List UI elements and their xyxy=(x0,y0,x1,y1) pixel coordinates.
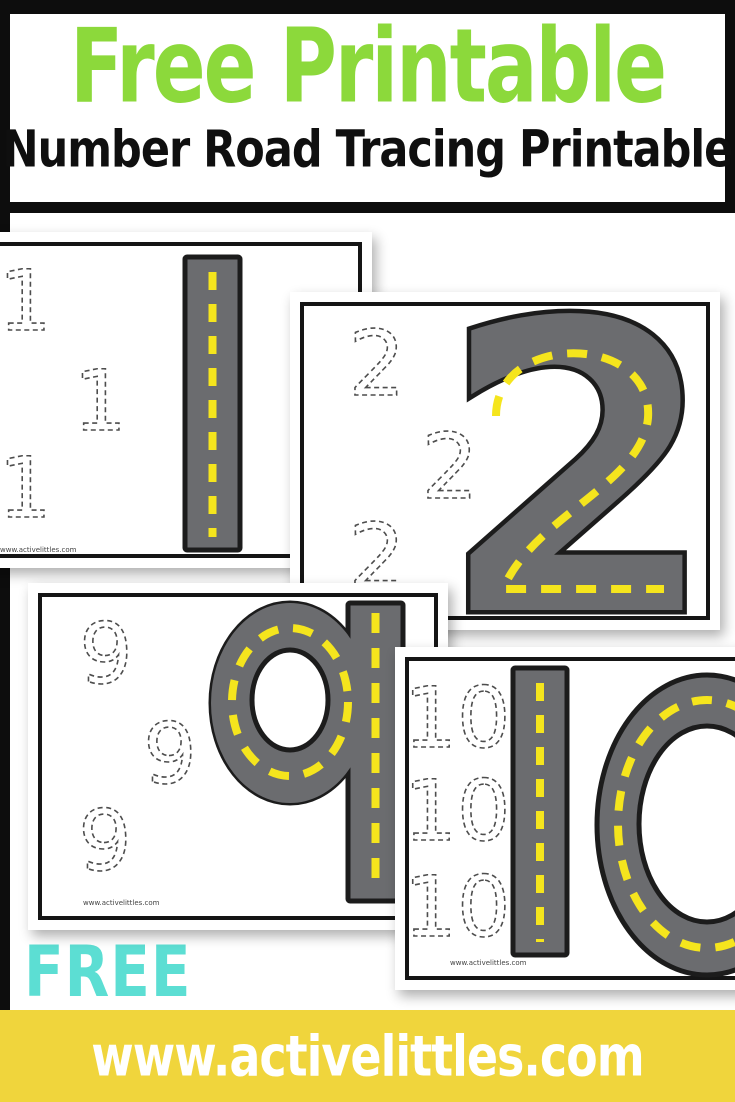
trace-digit: 9 xyxy=(79,605,132,703)
pin-image: Free Printable Number Road Tracing Print… xyxy=(0,0,735,1102)
trace-digit: 1 xyxy=(0,252,52,350)
worksheet-card-number-9: 9 9 9 www.activelittles.com xyxy=(28,583,448,930)
worksheet-card-number-2: 2 2 2 2 xyxy=(290,292,720,630)
trace-digit: 2 xyxy=(348,312,405,417)
watermark-text: www.activelittles.com xyxy=(83,899,160,907)
watermark-text: www.activelittles.com xyxy=(0,546,77,554)
header-divider-bar xyxy=(0,202,735,213)
trace-digit: 10 xyxy=(404,669,511,767)
free-label: FREE xyxy=(24,930,192,1013)
road-shape-10 xyxy=(513,668,735,975)
website-banner: www.activelittles.com xyxy=(0,1010,735,1102)
worksheet-art-9: 9 9 9 www.activelittles.com xyxy=(28,583,448,930)
worksheet-art-10: 10 10 10 www.activelittles.com xyxy=(395,647,735,990)
road-shape-9 xyxy=(211,603,403,901)
website-url: www.activelittles.com xyxy=(91,1023,643,1089)
trace-digit: 10 xyxy=(404,762,511,860)
page-subtitle: Number Road Tracing Printable xyxy=(0,112,735,188)
road-shape-2: 2 xyxy=(439,292,717,630)
trace-digit: 9 xyxy=(143,705,196,803)
trace-digit: 9 xyxy=(78,792,131,890)
trace-digit: 1 xyxy=(0,439,52,537)
trace-digit: 10 xyxy=(404,858,511,956)
worksheet-card-number-10: 10 10 10 www.activelittles.com xyxy=(395,647,735,990)
worksheet-art-2: 2 2 2 2 xyxy=(290,292,720,630)
trace-digit: 1 xyxy=(73,352,126,450)
watermark-text: www.activelittles.com xyxy=(450,959,527,967)
